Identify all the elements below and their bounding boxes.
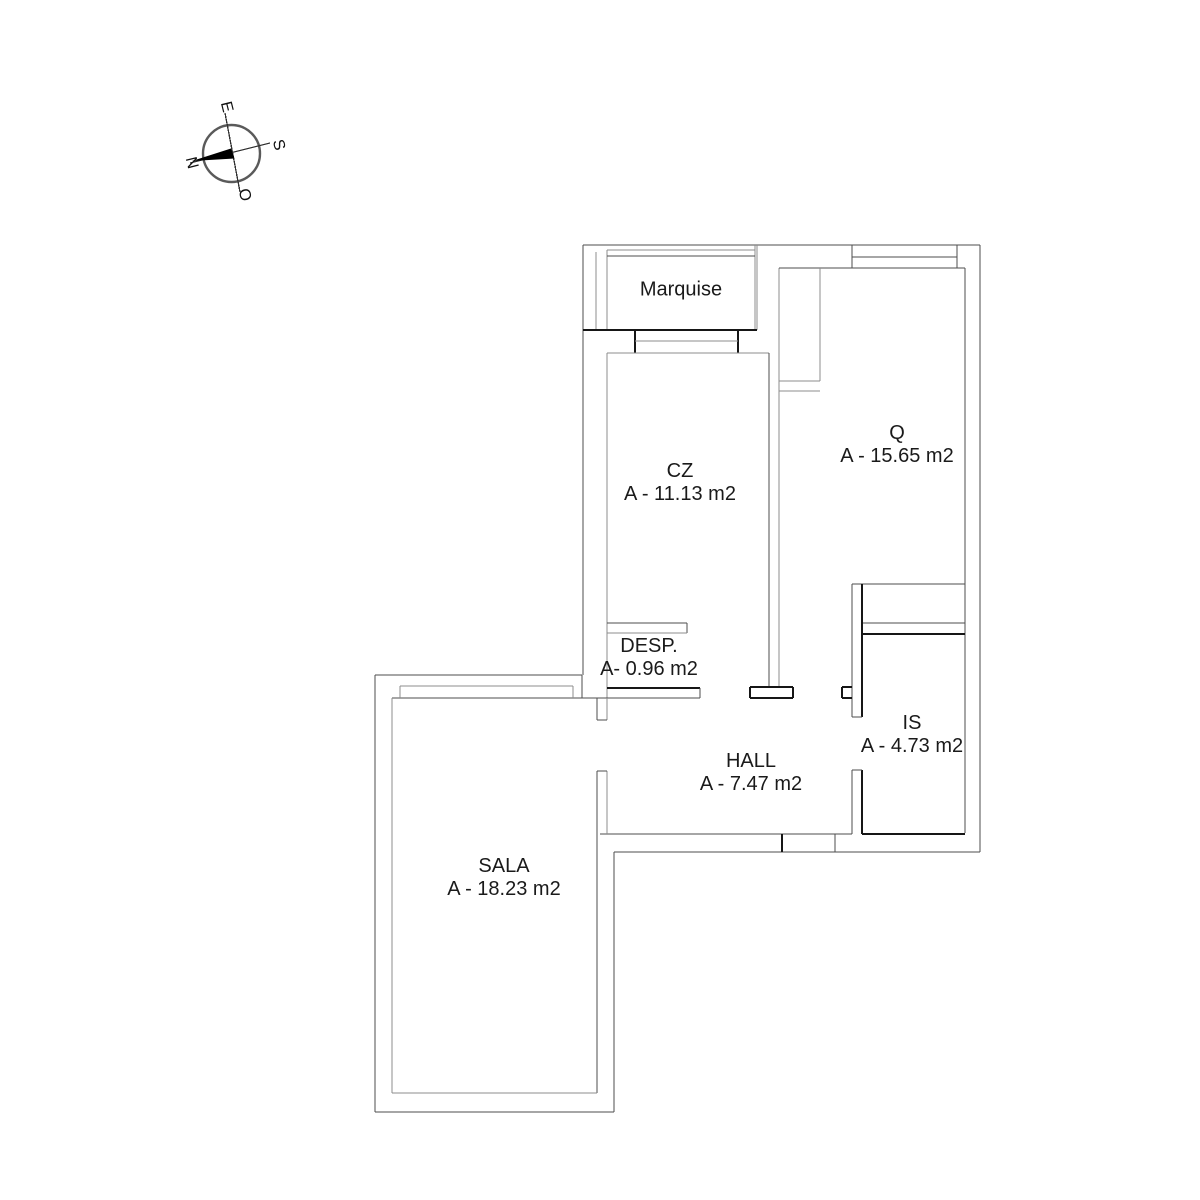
floor-plan-drawing: E S N O [0, 0, 1200, 1200]
room-area-desp: A- 0.96 m2 [600, 658, 698, 681]
room-name-desp: DESP. [600, 635, 698, 658]
room-label-q: Q A - 15.65 m2 [840, 422, 953, 468]
room-area-q: A - 15.65 m2 [840, 445, 953, 468]
room-label-marquise: Marquise [640, 279, 722, 302]
compass-label-south: S [269, 138, 288, 152]
room-area-cz: A - 11.13 m2 [624, 483, 736, 506]
room-area-hall: A - 7.47 m2 [700, 773, 802, 796]
room-name-marquise: Marquise [640, 279, 722, 302]
room-area-sala: A - 18.23 m2 [447, 878, 560, 901]
compass-rose: E S N O [182, 100, 288, 203]
room-area-is: A - 4.73 m2 [861, 735, 963, 758]
room-label-hall: HALL A - 7.47 m2 [700, 750, 802, 796]
room-label-cz: CZ A - 11.13 m2 [624, 460, 736, 506]
room-label-is: IS A - 4.73 m2 [861, 712, 963, 758]
compass-label-north: N [182, 155, 201, 170]
room-name-q: Q [840, 422, 953, 445]
room-label-desp: DESP. A- 0.96 m2 [600, 635, 698, 681]
compass-label-west: O [235, 187, 255, 203]
room-name-sala: SALA [447, 855, 560, 878]
room-label-sala: SALA A - 18.23 m2 [447, 855, 560, 901]
room-name-is: IS [861, 712, 963, 735]
room-name-hall: HALL [700, 750, 802, 773]
floor-plan-page: E S N O [0, 0, 1200, 1200]
room-name-cz: CZ [624, 460, 736, 483]
compass-label-east: E [217, 100, 236, 114]
